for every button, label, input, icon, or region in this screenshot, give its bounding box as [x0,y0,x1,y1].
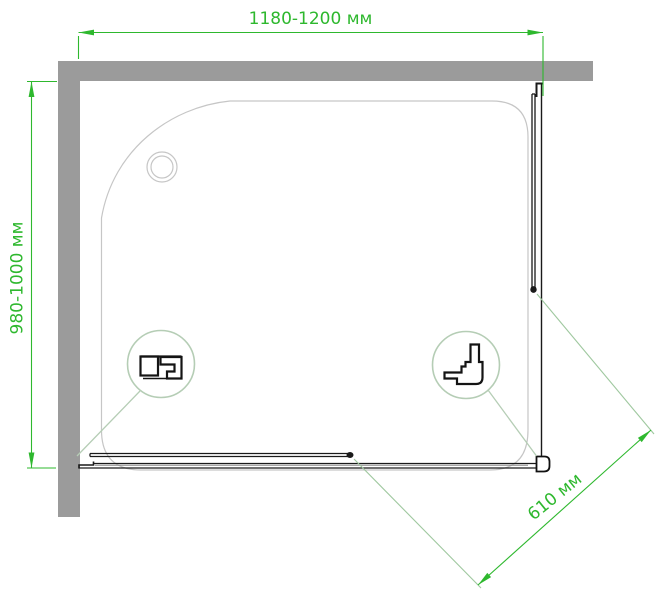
detail-leader-left [77,391,140,456]
dimension-left-depth [27,82,57,469]
walls [58,61,593,517]
depth-dimension-label: 980-1000 мм [8,198,28,359]
right-fixed-panel [537,84,544,458]
drain-inner-circle [151,156,173,178]
detail-callout-right [433,332,537,457]
bottom-door-roller-knob [347,452,354,458]
extension-line-upper [537,294,654,434]
right-door-roller-knob [530,286,536,293]
dimension-diagonal-opening [354,294,654,588]
detail-leader-right [488,390,537,456]
arrow-up [29,82,35,98]
shower-enclosure-top-view-diagram: 1180-1200 мм 980-1000 мм 610 мм [0,0,670,600]
bottom-fixed-panel [79,462,538,469]
right-sliding-door [530,94,536,293]
drawing-svg [0,0,670,600]
width-dimension-label: 1180-1200 мм [230,9,391,29]
arrow-right [528,30,544,36]
extension-line-lower [354,459,481,588]
shower-tray [102,101,529,470]
detail-callout-left [77,331,195,457]
bottom-sliding-door [90,452,354,458]
dimension-line [478,430,651,585]
corner-bracket-bottom-right [537,457,550,472]
wall-top [58,61,593,81]
arrow-left [79,30,95,36]
wall-left [58,61,80,517]
arrow-down [29,453,35,469]
